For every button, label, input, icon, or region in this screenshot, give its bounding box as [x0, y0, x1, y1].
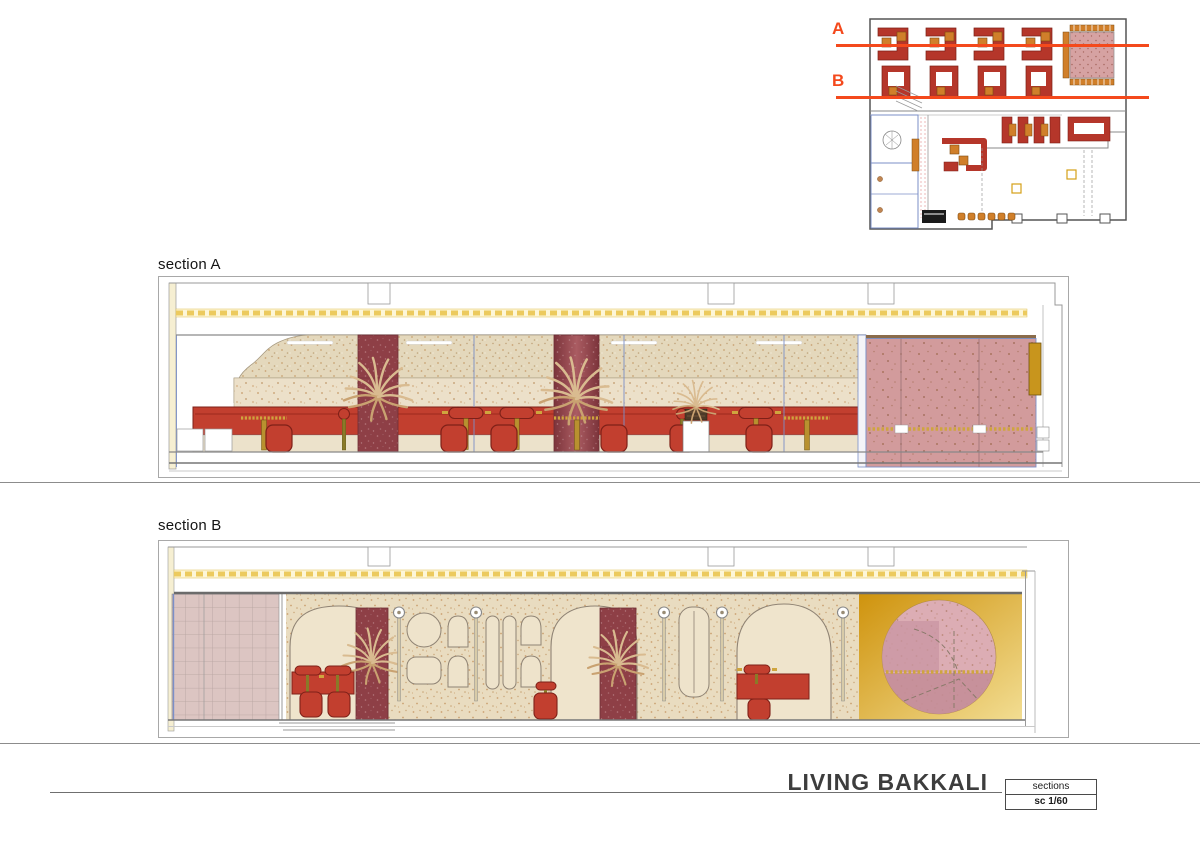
- section-a-drawing: [158, 276, 1069, 478]
- plan-marker-a-line: [836, 44, 1149, 47]
- floor-plan-thumbnail: [862, 14, 1136, 236]
- sheet-name: sections: [1006, 780, 1096, 795]
- plan-marker-b-line: [836, 96, 1149, 99]
- sheet-info-box: sections sc 1/60: [1005, 779, 1097, 810]
- title-rule: [50, 792, 1002, 793]
- divider-rule-top: [0, 482, 1200, 483]
- section-b-title: section B: [158, 517, 222, 534]
- plan-marker-b-label: B: [832, 72, 844, 89]
- divider-rule-bottom: [0, 743, 1200, 744]
- section-b-drawing: [158, 540, 1069, 738]
- floor-plan-drawing: [862, 14, 1136, 236]
- section-a-title: section A: [158, 256, 221, 273]
- sheet-scale: sc 1/60: [1006, 795, 1096, 810]
- plan-marker-a-label: A: [832, 20, 844, 37]
